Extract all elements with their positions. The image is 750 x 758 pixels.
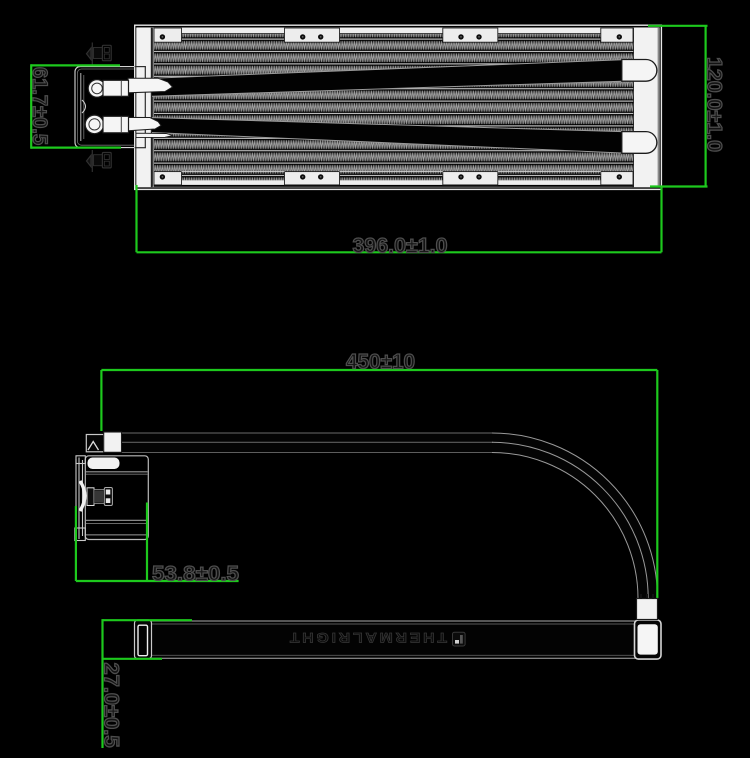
svg-text:120.0±1.0: 120.0±1.0: [703, 57, 726, 152]
svg-text:450±10: 450±10: [346, 349, 415, 373]
svg-text:THERMALRIGHT: THERMALRIGHT: [287, 630, 447, 646]
svg-text:27.0±0.5: 27.0±0.5: [100, 663, 123, 748]
svg-text:396.0±1.0: 396.0±1.0: [353, 234, 448, 258]
svg-text:61.7±0.5: 61.7±0.5: [28, 67, 51, 145]
svg-text:53.8±0.5: 53.8±0.5: [152, 562, 239, 586]
